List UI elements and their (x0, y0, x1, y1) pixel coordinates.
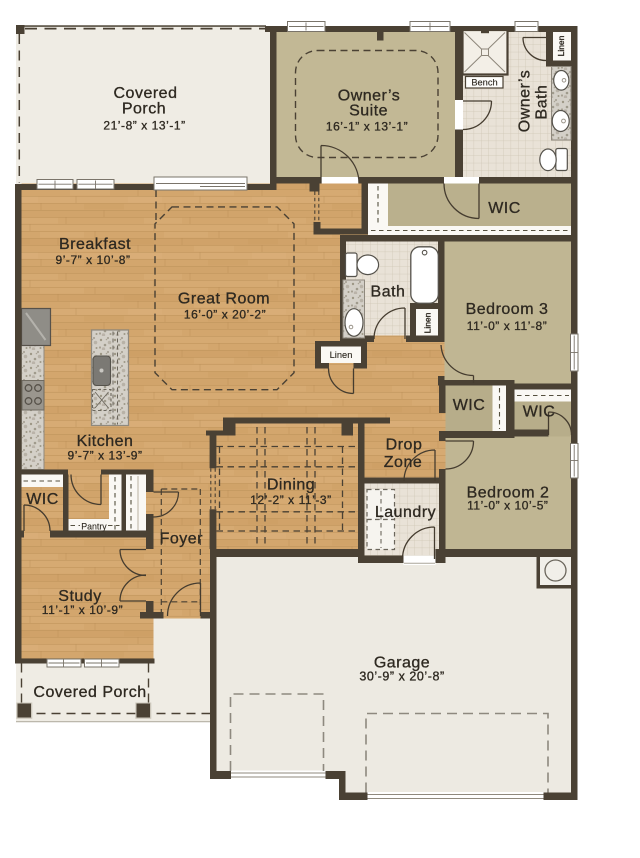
svg-text:Kitchen: Kitchen (77, 433, 134, 450)
svg-text:11’-0” x 10’-5”: 11’-0” x 10’-5” (467, 499, 548, 513)
svg-text:9’-7” x 13’-9”: 9’-7” x 13’-9” (67, 449, 142, 463)
svg-text:Foyer: Foyer (160, 531, 204, 548)
svg-text:Laundry: Laundry (375, 504, 436, 521)
svg-text:WIC: WIC (453, 397, 486, 414)
svg-text:Great Room: Great Room (178, 291, 270, 308)
svg-text:Bench: Bench (471, 78, 497, 88)
svg-text:Covered Porch: Covered Porch (33, 684, 146, 701)
svg-text:WIC: WIC (26, 491, 59, 508)
svg-text:21’-8” x 13’-1”: 21’-8” x 13’-1” (103, 119, 185, 133)
svg-text:11’-1” x 10’-9”: 11’-1” x 10’-9” (42, 603, 123, 617)
svg-text:Linen: Linen (423, 312, 433, 333)
svg-text:Pantry: Pantry (81, 522, 107, 532)
svg-text:16’-0” x 20’-2”: 16’-0” x 20’-2” (184, 308, 266, 322)
svg-text:Bedroom 3: Bedroom 3 (466, 301, 549, 318)
svg-text:WIC: WIC (488, 200, 521, 217)
svg-text:Bath: Bath (371, 283, 406, 300)
svg-text:Drop: Drop (386, 436, 423, 453)
svg-text:11’-0” x 11’-8”: 11’-0” x 11’-8” (467, 319, 548, 333)
svg-text:Dining: Dining (267, 477, 315, 494)
svg-text:Porch: Porch (122, 100, 166, 117)
svg-text:16’-1” x 13’-1”: 16’-1” x 13’-1” (326, 120, 408, 134)
svg-text:Zone: Zone (384, 454, 422, 471)
svg-text:Owner’s: Owner’s (517, 70, 534, 132)
svg-text:Linen: Linen (330, 350, 353, 360)
svg-text:Breakfast: Breakfast (59, 236, 131, 253)
svg-text:Suite: Suite (349, 103, 388, 120)
svg-text:Bath: Bath (534, 85, 551, 120)
svg-text:Linen: Linen (556, 35, 566, 56)
svg-text:30’-9” x 20’-8”: 30’-9” x 20’-8” (359, 670, 444, 684)
svg-text:12’-2” x 11’-3”: 12’-2” x 11’-3” (250, 493, 331, 507)
svg-text:9’-7” x 10’-8”: 9’-7” x 10’-8” (55, 253, 130, 267)
svg-text:WIC: WIC (523, 404, 556, 421)
